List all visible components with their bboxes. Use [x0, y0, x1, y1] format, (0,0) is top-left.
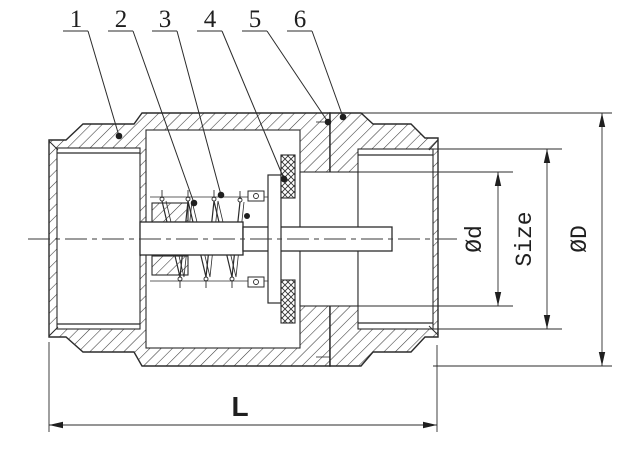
leader-1: [63, 31, 122, 139]
disc-seal-bottom: [281, 280, 295, 323]
callout-label-6: 6: [294, 6, 307, 33]
drawing-page: 1 2 3 4 5 6 Ød Size ØD L: [0, 0, 617, 449]
leader-6: [287, 31, 346, 120]
valve-cross-section-drawing: 1 2 3 4 5 6 Ød Size ØD L: [0, 0, 617, 449]
dim-label-outer-diameter: ØD: [567, 225, 593, 253]
callout-label-3: 3: [159, 6, 172, 33]
callout-label-2: 2: [115, 6, 128, 33]
valve-stem-hub: [140, 222, 243, 255]
callout-label-5: 5: [249, 6, 262, 33]
dim-label-inner-diameter: Ød: [462, 225, 488, 253]
spring-wire-end-dot: [244, 213, 250, 219]
callout-label-4: 4: [204, 6, 217, 33]
dim-label-port-size: Size: [512, 211, 538, 266]
callout-label-1: 1: [70, 6, 83, 33]
inlet-bore: [57, 148, 140, 329]
dim-label-length: L: [231, 391, 248, 422]
